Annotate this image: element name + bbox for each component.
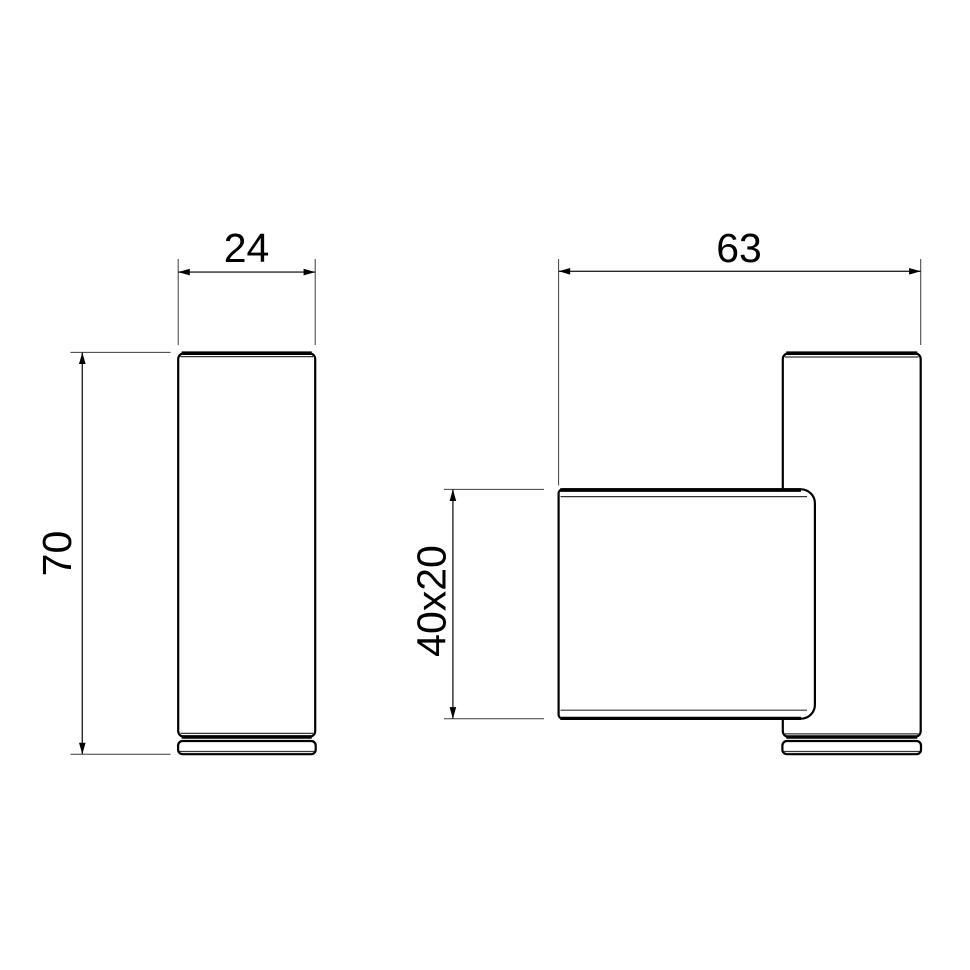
svg-text:24: 24 xyxy=(224,225,270,271)
svg-text:63: 63 xyxy=(716,225,762,271)
svg-text:70: 70 xyxy=(34,531,80,577)
svg-text:40x20: 40x20 xyxy=(409,545,455,657)
